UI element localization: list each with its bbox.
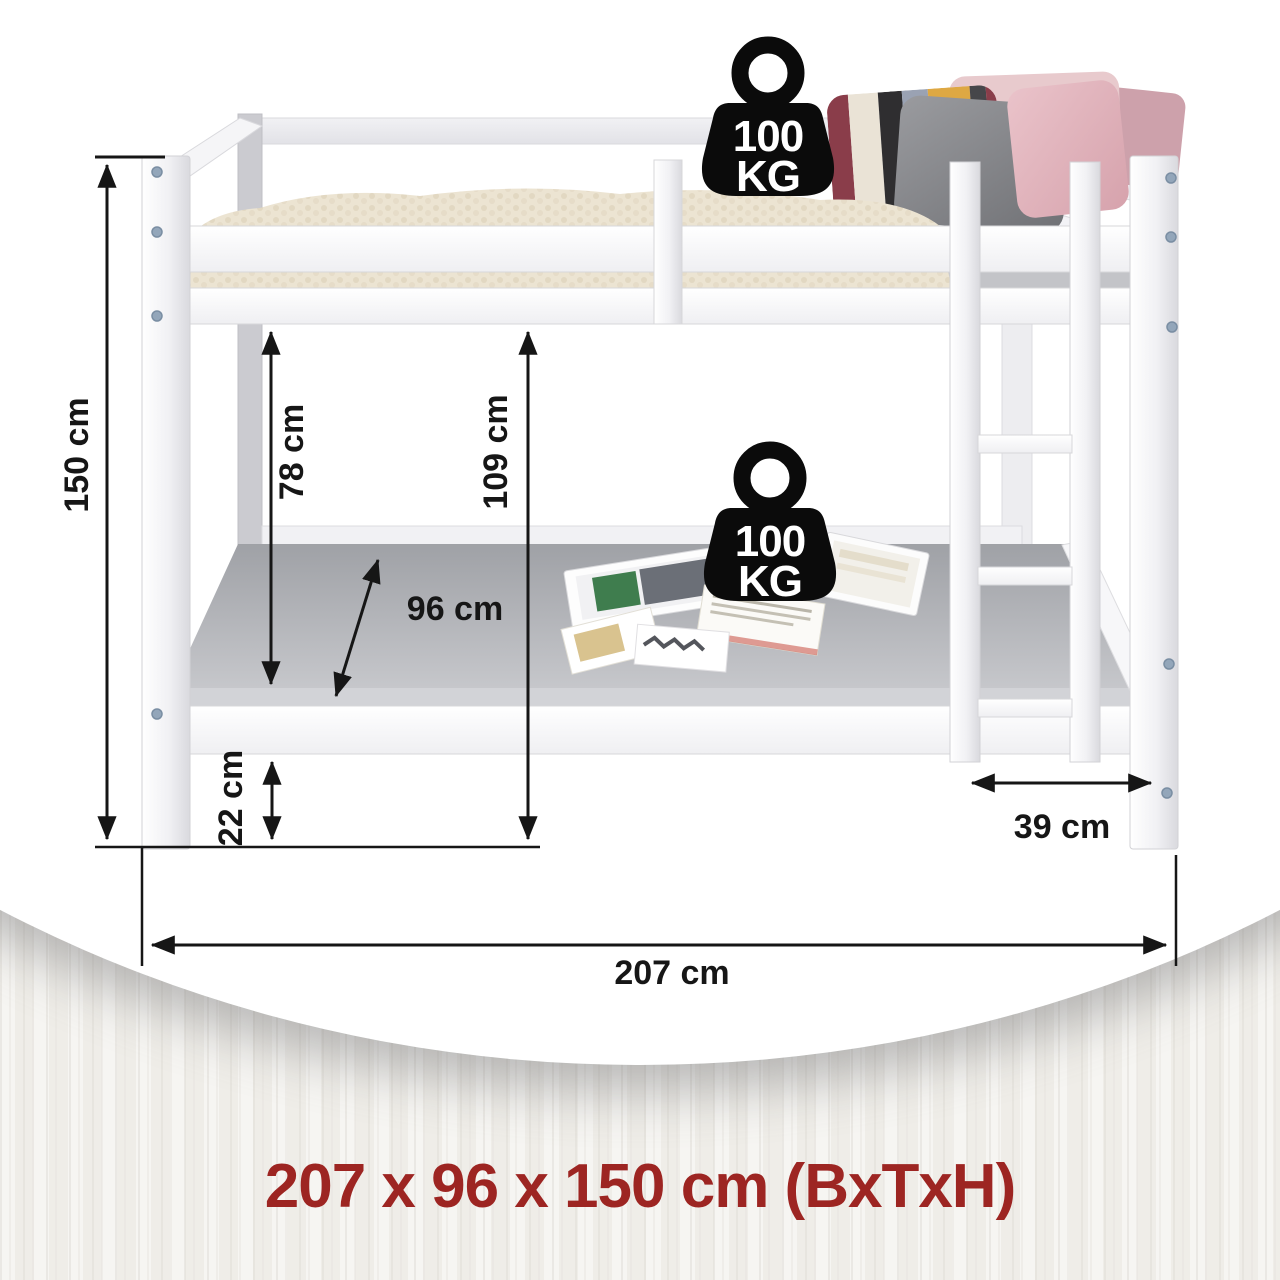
screw-icon	[1167, 322, 1177, 332]
game-card	[592, 571, 641, 611]
screw-icon	[152, 311, 162, 321]
ladder-left-stile	[950, 162, 980, 762]
ladder-offset-label: 39 cm	[1014, 808, 1110, 846]
ladder-rung	[978, 567, 1072, 585]
weight-unit: KG	[736, 152, 800, 201]
screw-icon	[152, 167, 162, 177]
screw-icon	[1164, 659, 1174, 669]
ladder-right-stile	[1070, 162, 1100, 762]
ladder-rung	[978, 435, 1072, 453]
bunk-clearance-label: 78 cm	[273, 404, 311, 500]
weight-100kg-icon: 100 KG	[702, 45, 834, 201]
screw-icon	[1166, 173, 1176, 183]
chevron-card	[634, 624, 729, 672]
product-dimension-image: 100 KG 100 KG 150 cm 78 cm 109 cm 96 cm …	[0, 0, 1280, 1280]
screw-icon	[1162, 788, 1172, 798]
under-top-height-label: 109 cm	[477, 394, 515, 509]
front-left-post	[142, 156, 190, 849]
product-size-caption: 207 x 96 x 150 cm (BxTxH)	[0, 1154, 1280, 1219]
screw-icon	[152, 227, 162, 237]
total-height-label: 150 cm	[58, 397, 96, 512]
back-left-post	[238, 114, 262, 546]
mattress-depth-label: 96 cm	[407, 590, 503, 628]
total-width-label: 207 cm	[614, 954, 729, 992]
screw-icon	[1166, 232, 1176, 242]
ladder-rung	[978, 699, 1072, 717]
frame-base-height-label: 22 cm	[212, 750, 250, 846]
weight-unit: KG	[738, 557, 802, 606]
bunk-bed-illustration: 100 KG 100 KG 150 cm 78 cm 109 cm 96 cm …	[0, 0, 1280, 1280]
front-right-post	[1130, 156, 1178, 849]
pink-pillow	[1006, 79, 1131, 220]
weight-100kg-icon: 100 KG	[704, 450, 836, 606]
guard-rail-divider	[654, 160, 682, 324]
screw-icon	[152, 709, 162, 719]
